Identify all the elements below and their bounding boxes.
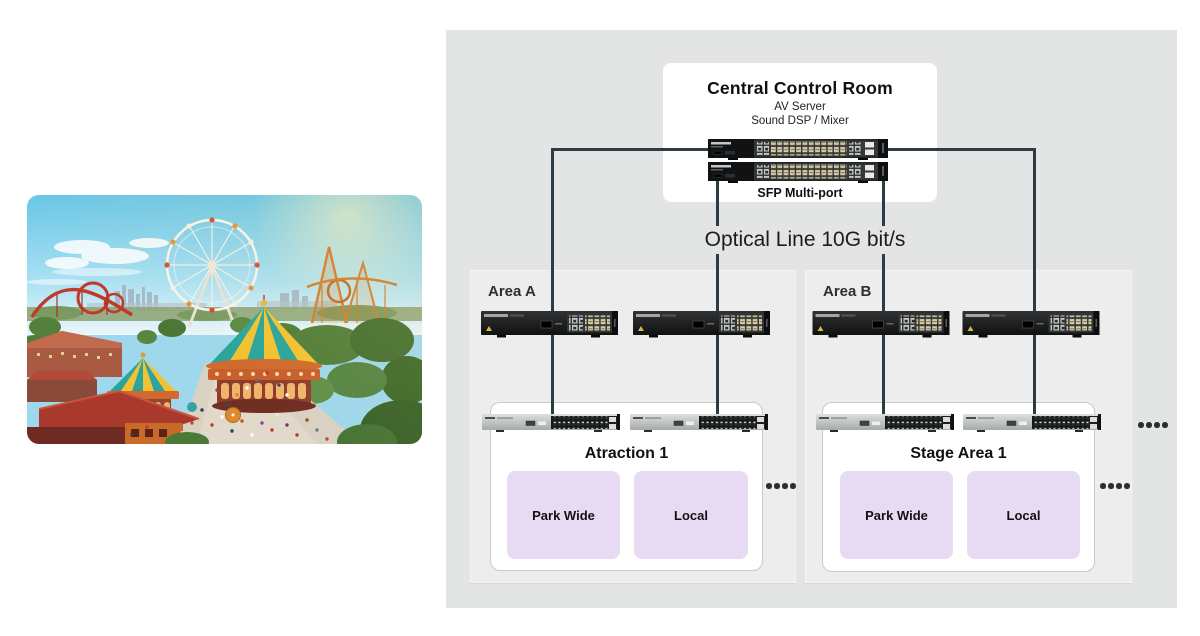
more-attractions-ellipsis	[766, 483, 796, 489]
optical-line-label: Optical Line 10G bit/s	[655, 226, 955, 254]
more-stages-ellipsis	[1100, 483, 1130, 489]
stage-edge-switch-2	[962, 414, 1102, 433]
optical-line-right-horizontal	[886, 148, 1036, 151]
area-a-switch-1	[481, 311, 618, 338]
optical-line-midright-vertical	[882, 180, 885, 417]
park-photo-illustration	[27, 195, 422, 444]
attraction-edge-switch-2	[630, 414, 768, 433]
sfp-multiport-label: SFP Multi-port	[663, 186, 937, 200]
area-a-switch-2	[633, 311, 770, 338]
zone-label: Local	[1007, 508, 1041, 523]
area-b-title: Area B	[823, 283, 871, 300]
area-b-switch-1	[812, 311, 950, 338]
zone-park-wide-a: Park Wide	[507, 471, 620, 559]
more-areas-ellipsis	[1138, 422, 1168, 428]
optical-line-left-vertical	[551, 148, 554, 417]
optical-line-midleft-vertical	[716, 180, 719, 417]
zone-local-b: Local	[967, 471, 1080, 559]
central-control-room-title: Central Control Room	[663, 78, 937, 99]
core-switch-1	[708, 139, 888, 160]
zone-label: Park Wide	[865, 508, 928, 523]
area-a-title: Area A	[488, 283, 536, 300]
optical-line-right-vertical	[1033, 148, 1036, 417]
zone-park-wide-b: Park Wide	[840, 471, 953, 559]
sound-dsp-mixer-label: Sound DSP / Mixer	[663, 115, 937, 127]
optical-line-left-horizontal	[552, 148, 710, 151]
page: Area A Area B Atraction 1 Stage Area 1 P…	[0, 0, 1200, 636]
zone-label: Park Wide	[532, 508, 595, 523]
attraction-title: Atraction 1	[490, 445, 763, 463]
core-switch-2	[708, 162, 888, 183]
stage-edge-switch-1	[815, 414, 955, 433]
park-photo	[27, 195, 422, 444]
attraction-edge-switch-1	[482, 414, 620, 433]
area-b-switch-2	[962, 311, 1100, 338]
stage-area-title: Stage Area 1	[822, 445, 1095, 463]
zone-label: Local	[674, 508, 708, 523]
zone-local-a: Local	[634, 471, 748, 559]
av-server-label: AV Server	[663, 101, 937, 113]
